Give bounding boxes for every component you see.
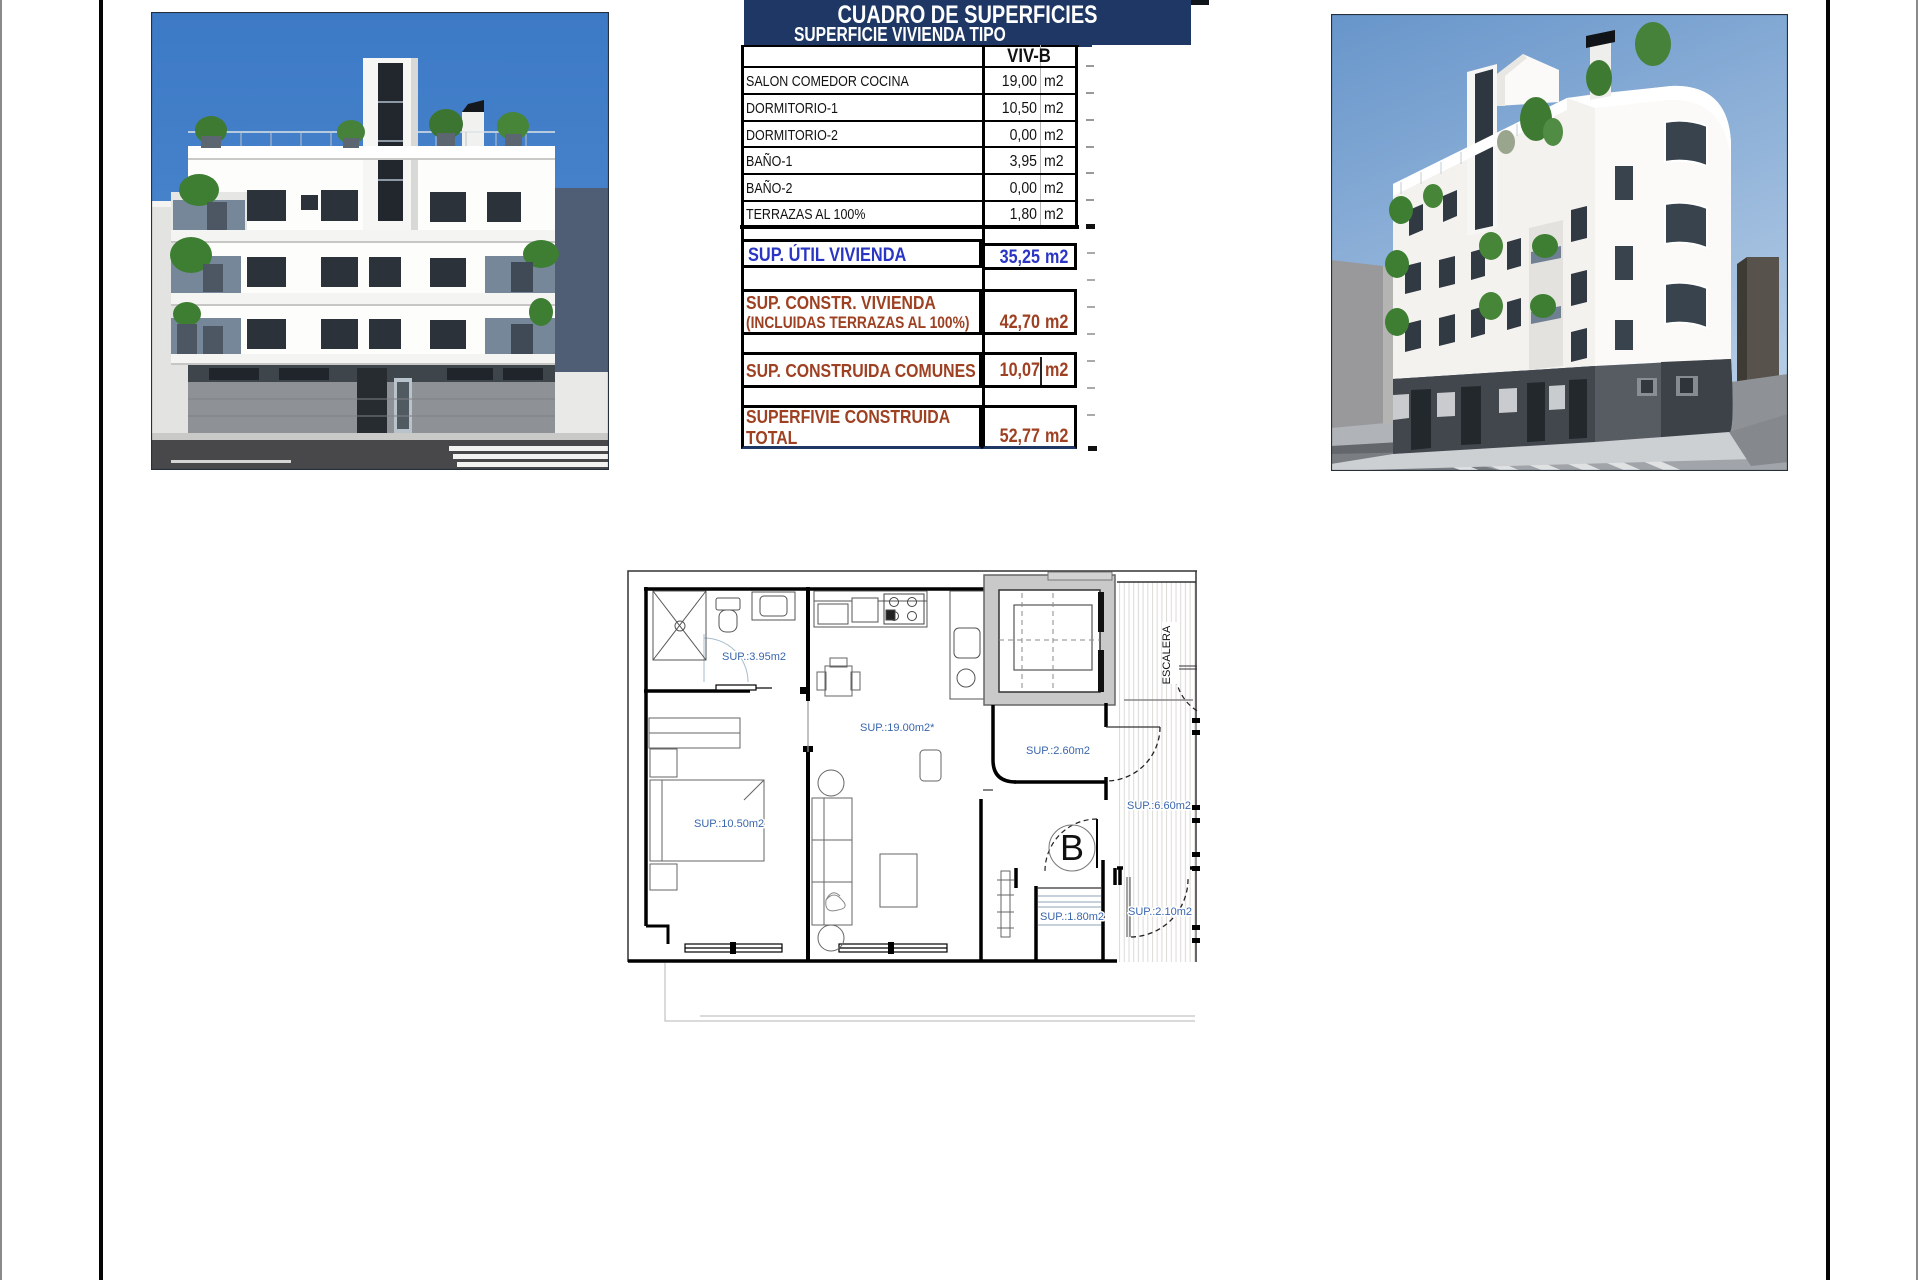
- svg-text:B: B: [1060, 827, 1084, 868]
- svg-text:SUP.:3.95m2: SUP.:3.95m2: [722, 651, 786, 663]
- svg-text:ESCALERA: ESCALERA: [1161, 625, 1173, 684]
- svg-text:SUP.:10.50m2: SUP.:10.50m2: [694, 818, 764, 830]
- svg-text:SUP.:1.80m2: SUP.:1.80m2: [1040, 911, 1104, 923]
- svg-text:SUP.:2.60m2: SUP.:2.60m2: [1026, 745, 1090, 757]
- svg-text:SUP.:6.60m2: SUP.:6.60m2: [1127, 800, 1191, 812]
- svg-text:SUP.:2.10m2: SUP.:2.10m2: [1128, 906, 1192, 918]
- svg-text:SUP.:19.00m2*: SUP.:19.00m2*: [860, 722, 935, 734]
